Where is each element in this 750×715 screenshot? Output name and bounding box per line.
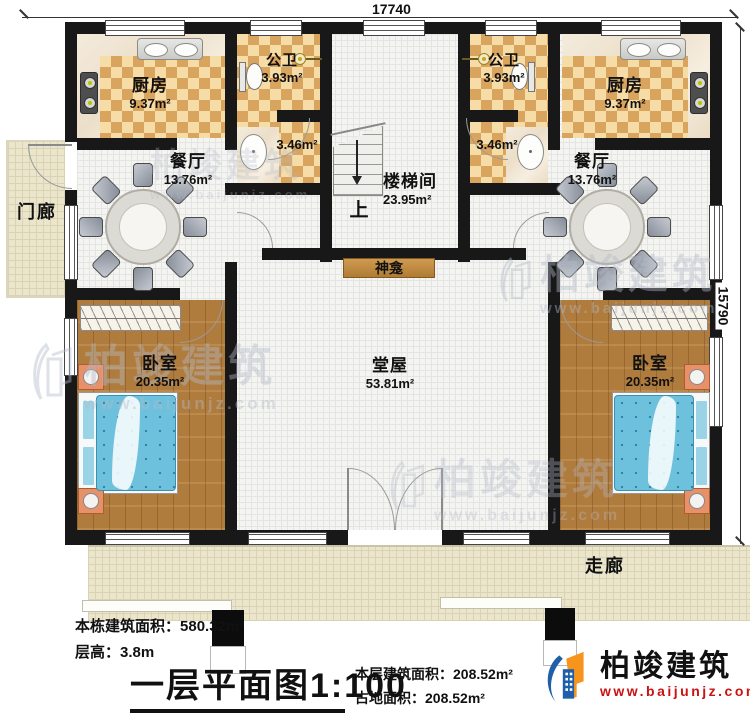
room-area: 9.37m² [95,96,205,111]
wall-hall-right [548,262,560,533]
window-top-stairwell [363,20,425,36]
burner-icon [694,77,706,89]
room-name: 餐厅 [546,152,638,172]
plan-title-text: 一层平面图 [130,667,310,705]
label-kitchen-left: 厨房 9.37m² [95,76,205,111]
chair [79,217,103,237]
room-name: 卧室 [600,354,700,374]
label-stairwell: 楼梯间 23.95m² [383,172,463,207]
room-name: 公卫 [244,52,320,70]
label-dining-left: 餐厅 13.76m² [142,152,234,187]
room-area: 3.46m² [468,137,526,152]
floor-height-label: 层高： [75,644,120,661]
pillow [694,399,709,441]
room-name: 堂屋 [345,356,435,376]
label-stair-up: 上 [346,200,372,222]
land-area-line: 占地面积：208.52m² [355,688,485,708]
chair [597,267,617,291]
room-name: 卧室 [110,354,210,374]
floor-area-label: 本层建筑面积： [355,666,453,682]
label-bath-left: 公卫 3.93m² [244,52,320,85]
label-bath-right: 公卫 3.93m² [466,52,542,85]
label-wash-left: 3.46m² [268,137,326,152]
brand-text-block: 柏竣建筑 www.baijunjz.com [600,652,750,702]
porch-door-leaf [28,144,72,146]
wall-kitchen-left-bottom [65,138,177,150]
room-name: 走廊 [585,556,625,576]
stair-direction-arrow [356,140,358,178]
room-name: 厨房 [570,76,680,96]
sink-basin [174,43,198,57]
sink-basin [627,43,651,57]
window-top-bath-right [485,20,537,36]
dimension-top-value: 17740 [368,1,415,17]
window-bottom-hall-left [248,532,327,545]
nightstand [684,488,710,514]
room-area: 23.95m² [383,192,463,207]
dimension-line-right [740,28,741,544]
kitchen-left-sink [137,38,203,60]
nightstand [78,364,104,390]
window-left-bedroom [64,318,78,376]
room-name: 厨房 [95,76,205,96]
pillow [81,399,96,441]
table-center [119,203,167,251]
window-top-bath-left [250,20,302,36]
plan-title-block: 一层平面图1:100 [130,658,345,715]
label-corridor: 走廊 [568,556,642,577]
wall-bedroom-left-top [77,288,180,300]
chair [133,267,153,291]
label-kitchen-right: 厨房 9.37m² [570,76,680,111]
kitchen-right-stove [690,72,708,114]
land-area-value: 208.52m² [425,690,485,706]
room-name: 楼梯间 [383,172,463,192]
brand-logo-icon [542,648,594,706]
pillow [694,445,709,487]
window-top-kitchen-right [601,20,681,36]
window-bottom-bedroom-right [585,532,670,545]
table-center [583,203,631,251]
brand-name: 柏竣建筑 [600,652,750,682]
sink-basin [144,43,168,57]
corridor-step-right [440,597,562,609]
closet-left [80,305,181,331]
window-right-dining [709,205,723,280]
building-area-label: 本栋建筑面积： [75,618,180,635]
window-bottom-bedroom-left [105,532,190,545]
window-top-kitchen-left [105,20,185,36]
main-door-right-leaf [441,468,443,530]
floor-area-value: 208.52m² [453,666,513,682]
window-left-dining [64,205,78,280]
stair-arrowhead-icon [352,176,362,185]
building-area-value: 580.32m² [180,618,244,635]
room-area: 3.93m² [466,70,542,85]
brand-url: www.baijunjz.com [600,682,750,702]
nightstand [78,488,104,514]
dimension-right-value: 15790 [715,283,731,330]
wall-kitchen-right [548,22,560,150]
building-area-line: 本栋建筑面积：580.32m² [75,615,244,636]
floor-area-line: 本层建筑面积：208.52m² [355,664,513,684]
window-right-bedroom [709,337,723,427]
room-area: 53.81m² [345,376,435,391]
main-door-opening [348,530,442,545]
chair [647,217,671,237]
chair [183,217,207,237]
room-name: 公卫 [466,52,542,70]
wall-bath-right-bottom [458,183,560,195]
column [545,608,575,640]
wall-kitchen-left [225,22,237,150]
brand-logo: 柏竣建筑 www.baijunjz.com [542,648,750,706]
kitchen-right-sink [620,38,686,60]
sink-basin [657,43,681,57]
dimension-line-top [22,17,738,18]
wall-kitchen-right-bottom [595,138,722,150]
label-porch: 门廊 [8,202,66,223]
up-text: 上 [349,200,368,221]
room-area: 20.35m² [600,374,700,389]
label-dining-right: 餐厅 13.76m² [546,152,638,187]
label-bedroom-right: 卧室 20.35m² [600,354,700,389]
label-wash-right: 3.46m² [468,137,526,152]
wall-bedroom-right-top [603,288,710,300]
room-area: 3.46m² [268,137,326,152]
wall-left [65,22,77,545]
room-area: 9.37m² [570,96,680,111]
shrine-cabinet: 神龛 [343,258,435,278]
washbasin-left [240,134,267,170]
closet-right [611,305,708,331]
title-underline [130,709,345,713]
room-area: 20.35m² [110,374,210,389]
window-bottom-hall-right [463,532,530,545]
room-area: 13.76m² [546,172,638,187]
room-area: 3.93m² [244,70,320,85]
floor-plan-canvas: 神龛 [0,0,750,715]
pillow [81,445,96,487]
wall-hall-left [225,262,237,533]
burner-icon [694,97,706,109]
wall-bath-left-bottom [225,183,332,195]
room-area: 13.76m² [142,172,234,187]
label-hall: 堂屋 53.81m² [345,356,435,391]
room-name: 门廊 [17,202,57,222]
room-name: 餐厅 [142,152,234,172]
shrine-label: 神龛 [375,258,403,278]
label-bedroom-left: 卧室 20.35m² [110,354,210,389]
corridor-step-left [82,600,232,612]
land-area-label: 占地面积： [355,690,425,706]
